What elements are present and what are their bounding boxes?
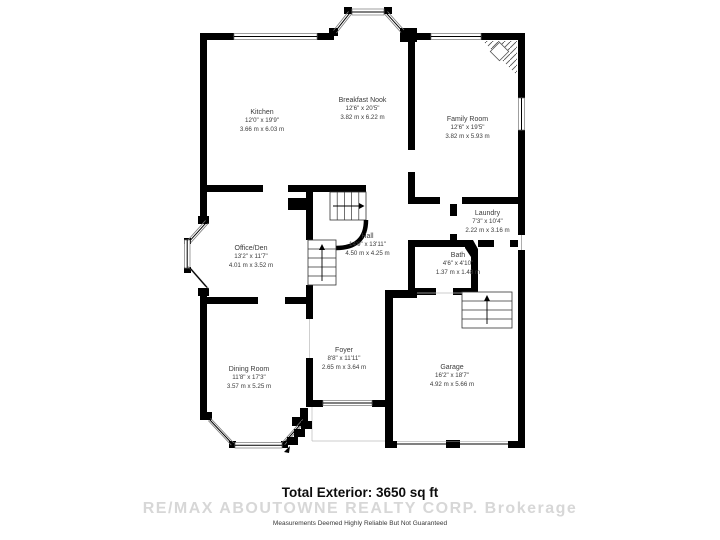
garage-entry-steps bbox=[462, 292, 512, 328]
brokerage-watermark: RE/MAX ABOUTOWNE REALTY CORP. Brokerage bbox=[0, 500, 720, 518]
disclaimer-text: Measurements Deemed Highly Reliable But … bbox=[0, 520, 720, 527]
floor-plan-page: Kitchen 12'0" x 19'9" 3.66 m x 6.03 m Br… bbox=[0, 0, 720, 540]
total-exterior-text: Total Exterior: 3650 sq ft bbox=[0, 485, 720, 500]
porch-steps bbox=[284, 407, 385, 453]
fireplace-icon bbox=[483, 41, 517, 75]
exterior-walls bbox=[184, 7, 525, 448]
floor-plan-drawing bbox=[0, 0, 720, 470]
windows bbox=[185, 9, 525, 448]
staircase bbox=[308, 192, 366, 285]
